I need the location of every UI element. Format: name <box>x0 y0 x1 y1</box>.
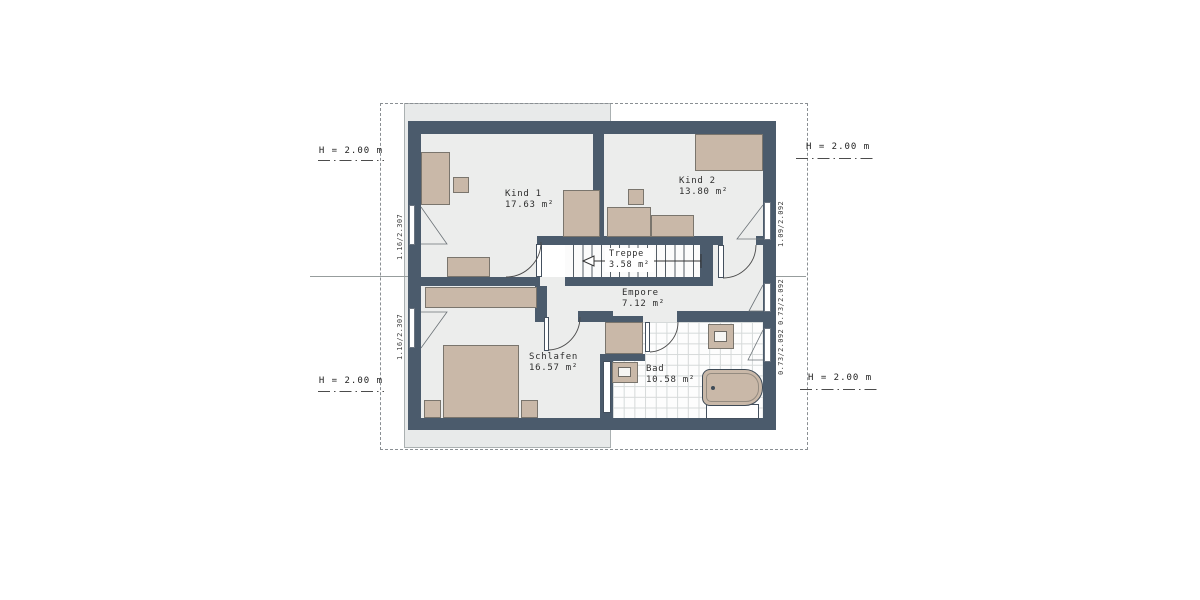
room-label-kind2: Kind 213.80 m² <box>679 176 728 198</box>
room-area: 13.80 m² <box>679 187 728 197</box>
window-bad-east <box>764 328 771 362</box>
room-name: Schlafen <box>529 352 578 362</box>
wall-stair-south <box>565 277 700 286</box>
room-area: 10.58 m² <box>646 375 695 385</box>
room-name: Kind 1 <box>505 189 542 199</box>
bed-kind2 <box>695 134 763 171</box>
wall-stair-east <box>700 245 713 286</box>
washbasin-east-bowl <box>714 331 727 342</box>
room-label-kind1: Kind 117.63 m² <box>505 189 554 211</box>
height-line-left-top <box>318 160 384 161</box>
window-dim-left-upper: 1.16/2.307 <box>396 200 404 260</box>
window-bad-south <box>706 404 759 419</box>
height-annotation-left-bottom: H = 2.00 m <box>303 376 383 386</box>
room-area: 17.63 m² <box>505 200 554 210</box>
dresser-kind1 <box>447 257 490 277</box>
sliding-door-schlafen-bad <box>603 361 611 413</box>
height-annotation-right-bottom: H = 2.00 m <box>808 373 872 383</box>
room-name: Empore <box>622 288 659 298</box>
window-dim-right-middle: 0.73/2.092 <box>777 270 785 325</box>
room-label-treppe: Treppe3.58 m² <box>605 248 654 272</box>
room-area: 3.58 m² <box>609 260 650 270</box>
room-name: Bad <box>646 364 664 374</box>
window-schlafen <box>409 308 415 348</box>
nightstand-left <box>424 400 441 418</box>
stool-kind1 <box>453 177 469 193</box>
bed-kind1 <box>421 152 450 205</box>
height-line-left-bottom <box>318 391 384 392</box>
sideboard-kind2 <box>651 215 694 237</box>
window-kind2 <box>764 202 771 240</box>
wall-schlafen-north <box>418 277 540 286</box>
room-area: 7.12 m² <box>622 299 665 309</box>
height-line-right-bottom <box>800 389 878 390</box>
bed-schlafen <box>443 345 519 418</box>
floor-plan-canvas: Kind 117.63 m² Kind 213.80 m² Treppe3.58… <box>0 0 1200 600</box>
desk-kind2 <box>607 207 651 237</box>
room-label-bad: Bad10.58 m² <box>646 364 695 386</box>
wall-bad-north <box>677 311 763 322</box>
room-name: Treppe <box>609 249 644 259</box>
window-empore <box>764 283 771 312</box>
washbasin-west-bowl <box>618 367 631 377</box>
door-leaf-kind1 <box>536 244 542 277</box>
bathtub-drain <box>711 386 715 390</box>
window-dim-right-upper: 1.09/2.092 <box>777 192 785 247</box>
nightstand-right <box>521 400 538 418</box>
height-annotation-left-top: H = 2.00 m <box>303 146 383 156</box>
door-leaf-bad <box>645 322 650 352</box>
height-line-right-top <box>796 158 874 159</box>
stair-landing <box>542 245 565 277</box>
room-label-schlafen: Schlafen16.57 m² <box>529 352 578 374</box>
room-name: Kind 2 <box>679 176 716 186</box>
window-dim-left-lower: 1.16/2.307 <box>396 300 404 360</box>
room-label-empore: Empore7.12 m² <box>622 288 665 310</box>
wall-stair-north <box>537 236 723 245</box>
window-kind1 <box>409 205 415 245</box>
door-leaf-kind2 <box>718 245 724 278</box>
sideboard-schlafen <box>425 287 537 308</box>
height-annotation-right-top: H = 2.00 m <box>806 142 870 152</box>
stool-kind2 <box>628 189 644 205</box>
wall-segment <box>756 236 763 245</box>
window-dim-right-lower: 0.73/2.092 <box>777 320 785 375</box>
room-area: 16.57 m² <box>529 363 578 373</box>
door-leaf-schlafen <box>544 317 549 351</box>
bathtub <box>702 369 763 406</box>
wardrobe-kind1 <box>563 190 600 237</box>
closet-block <box>605 322 643 354</box>
